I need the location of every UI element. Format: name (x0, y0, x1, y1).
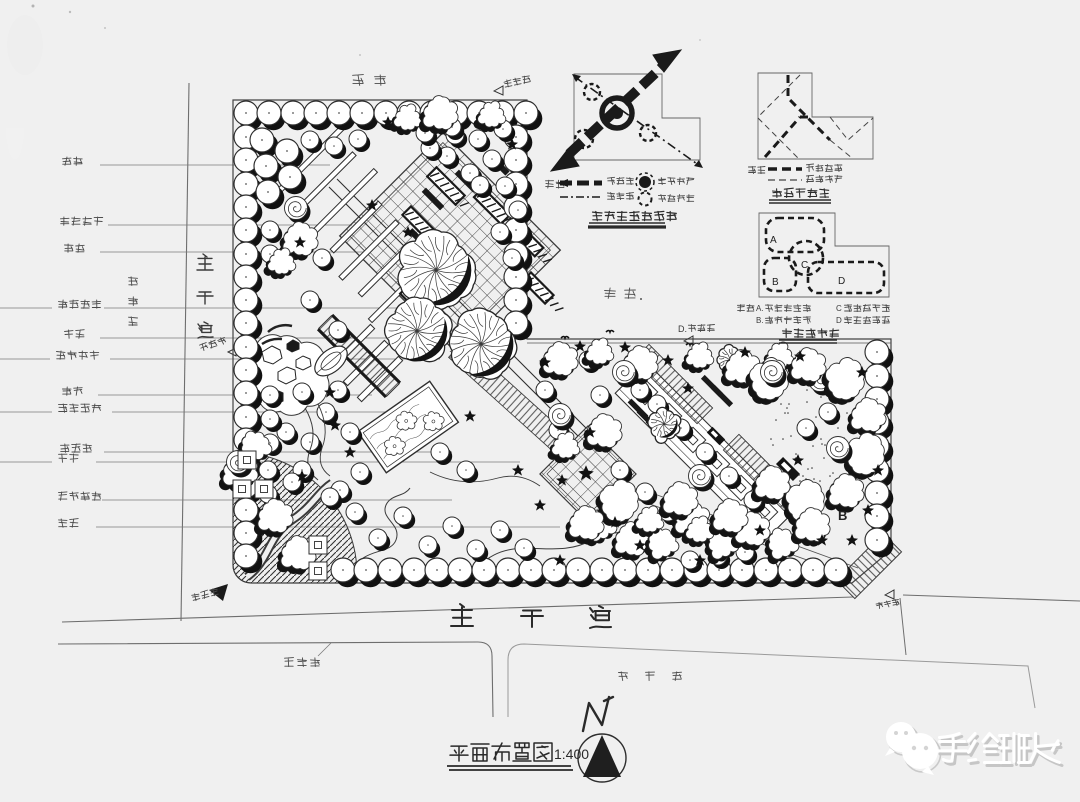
svg-text:B: B (838, 508, 847, 523)
svg-text:D: D (836, 316, 842, 325)
svg-text:D.: D. (678, 324, 687, 334)
svg-text:B.: B. (756, 316, 764, 325)
svg-text:C: C (836, 304, 842, 313)
svg-text:B: B (772, 277, 779, 288)
svg-text:A.: A. (756, 304, 764, 313)
svg-text:D: D (838, 276, 845, 287)
svg-text:1:400: 1:400 (554, 746, 589, 762)
svg-text:A: A (770, 235, 777, 246)
